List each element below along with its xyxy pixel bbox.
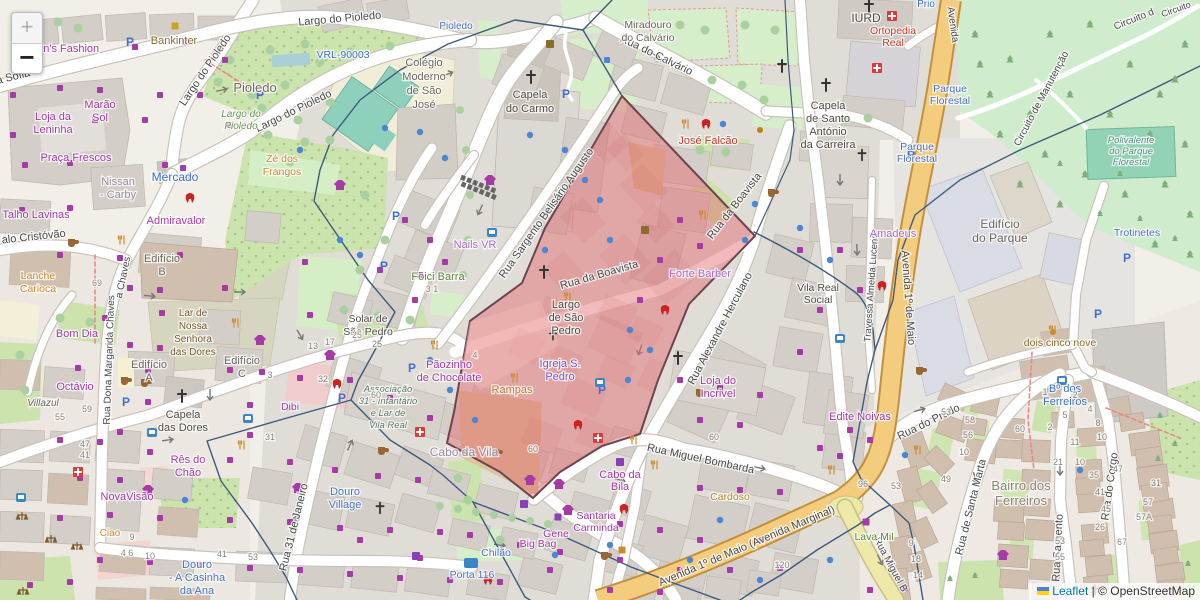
svg-text:35: 35 <box>1089 470 1099 480</box>
svg-text:5: 5 <box>1062 410 1067 420</box>
svg-text:Florestal: Florestal <box>897 153 937 165</box>
svg-text:de Santo: de Santo <box>806 113 850 125</box>
svg-text:Big Bag: Big Bag <box>520 538 557 550</box>
svg-text:25: 25 <box>352 330 362 340</box>
svg-text:Villazul: Villazul <box>27 398 59 409</box>
svg-text:11: 11 <box>1070 437 1079 447</box>
svg-text:Carioca: Carioca <box>20 283 56 295</box>
svg-text:das Dores: das Dores <box>158 422 209 434</box>
svg-text:Forte Barber: Forte Barber <box>669 268 731 280</box>
svg-text:49: 49 <box>941 474 951 484</box>
svg-text:da Carreira: da Carreira <box>800 139 856 151</box>
svg-text:31: 31 <box>1151 478 1161 488</box>
svg-text:Moderno: Moderno <box>402 71 445 83</box>
svg-text:53: 53 <box>248 552 258 562</box>
svg-text:47: 47 <box>80 439 90 449</box>
svg-text:59: 59 <box>82 404 92 414</box>
svg-text:2: 2 <box>1072 390 1077 400</box>
svg-text:Cabo da Vila: Cabo da Vila <box>430 445 499 459</box>
svg-text:Ortopedia: Ortopedia <box>870 25 916 37</box>
svg-text:Pedro: Pedro <box>545 371 574 383</box>
svg-text:Frangos: Frangos <box>263 166 302 178</box>
svg-text:32: 32 <box>318 374 328 384</box>
svg-text:Social: Social <box>804 294 833 306</box>
svg-text:Chão: Chão <box>175 467 201 479</box>
svg-text:Parque: Parque <box>933 83 967 95</box>
svg-text:Santaria: Santaria <box>576 510 615 522</box>
svg-text:P: P <box>122 395 130 409</box>
svg-text:do Parque: do Parque <box>972 231 1028 245</box>
svg-text:dois cinco nove: dois cinco nove <box>1024 337 1097 349</box>
svg-text:9: 9 <box>129 532 134 542</box>
svg-text:NovaVisão: NovaVisão <box>101 491 154 503</box>
svg-text:Prio: Prio <box>917 0 935 10</box>
svg-text:8: 8 <box>1095 418 1100 428</box>
svg-text:Loja do: Loja do <box>700 375 736 387</box>
svg-text:Leninha: Leninha <box>33 124 73 136</box>
svg-text:57A: 57A <box>1136 512 1152 522</box>
svg-text:69: 69 <box>92 278 102 288</box>
svg-text:Bairro dos: Bairro dos <box>991 478 1051 493</box>
svg-text:Ferreiros: Ferreiros <box>995 493 1048 508</box>
svg-text:Miradouro: Miradouro <box>624 19 671 31</box>
svg-text:Florestal: Florestal <box>930 95 970 107</box>
svg-text:B: B <box>158 266 165 278</box>
svg-text:Chilão: Chilão <box>481 547 511 559</box>
svg-text:Parque: Parque <box>900 141 934 153</box>
svg-text:Pioledo: Pioledo <box>224 121 258 132</box>
svg-text:P: P <box>562 87 570 101</box>
svg-text:Igreja S.: Igreja S. <box>540 358 581 370</box>
svg-text:10: 10 <box>1097 432 1107 442</box>
svg-text:Bankinter: Bankinter <box>151 35 198 47</box>
svg-text:67: 67 <box>1117 537 1127 547</box>
svg-text:4: 4 <box>472 350 477 360</box>
svg-text:do Calvário: do Calvário <box>621 32 674 44</box>
svg-text:Largo do: Largo do <box>221 109 261 120</box>
svg-text:96: 96 <box>858 479 868 489</box>
svg-text:Ciao: Ciao <box>100 528 121 539</box>
svg-text:Village: Village <box>329 499 362 511</box>
svg-text:VRL-90003: VRL-90003 <box>316 49 369 61</box>
svg-text:Capela: Capela <box>166 409 202 421</box>
svg-text:de Chocolate: de Chocolate <box>417 372 482 384</box>
svg-text:Pioledo: Pioledo <box>233 80 276 95</box>
svg-text:Edifício: Edifício <box>144 253 180 265</box>
svg-text:de São: de São <box>407 85 442 97</box>
svg-text:Nails VR: Nails VR <box>454 239 497 251</box>
svg-text:Pãozinho: Pãozinho <box>426 359 472 371</box>
svg-text:56: 56 <box>963 430 973 440</box>
svg-text:Bom Dia: Bom Dia <box>56 328 99 340</box>
svg-text:Praça Frescos: Praça Frescos <box>41 152 112 164</box>
svg-text:18: 18 <box>911 554 921 564</box>
svg-text:41: 41 <box>217 549 227 559</box>
svg-text:P: P <box>392 209 400 223</box>
svg-text:Edite Noivas: Edite Noivas <box>829 411 891 423</box>
svg-text:Largo: Largo <box>552 299 580 311</box>
svg-text:Loja da: Loja da <box>35 111 72 123</box>
svg-text:de São: de São <box>549 312 584 324</box>
svg-text:P: P <box>126 35 134 49</box>
svg-text:Mercado: Mercado <box>152 170 199 184</box>
svg-text:3: 3 <box>267 370 272 380</box>
svg-text:Marão: Marão <box>84 99 115 111</box>
svg-text:Rês do: Rês do <box>171 454 206 466</box>
svg-text:- Carby: - Carby <box>100 189 137 201</box>
svg-text:Nissan: Nissan <box>101 176 135 188</box>
svg-text:Bila: Bila <box>611 481 630 493</box>
svg-text:Lava Mil: Lava Mil <box>854 531 893 543</box>
svg-text:31: 31 <box>265 432 275 442</box>
svg-text:60: 60 <box>1015 424 1025 434</box>
svg-text:IURD: IURD <box>851 11 881 25</box>
svg-text:P: P <box>338 391 346 405</box>
svg-text:Edifício: Edifício <box>980 217 1020 231</box>
svg-text:Talho Lavinas: Talho Lavinas <box>2 209 70 221</box>
svg-text:Douro: Douro <box>330 486 360 498</box>
svg-text:Edifício: Edifício <box>224 355 260 367</box>
svg-text:Dibi: Dibi <box>281 401 299 413</box>
svg-text:José Falcão: José Falcão <box>678 135 737 147</box>
svg-text:10: 10 <box>959 447 969 457</box>
svg-text:4: 4 <box>1087 404 1092 414</box>
svg-text:25: 25 <box>372 339 382 349</box>
svg-text:Cardoso: Cardoso <box>710 491 750 503</box>
svg-text:do Parque: do Parque <box>1109 146 1153 157</box>
svg-text:P: P <box>1094 307 1102 321</box>
svg-text:C: C <box>238 368 246 380</box>
svg-text:60: 60 <box>528 444 538 454</box>
svg-text:Zé dos: Zé dos <box>266 153 298 165</box>
svg-text:Incrivel: Incrivel <box>701 388 736 400</box>
svg-text:57: 57 <box>1143 497 1153 507</box>
svg-text:13: 13 <box>308 341 318 351</box>
svg-text:45: 45 <box>1101 504 1111 514</box>
svg-text:Porta 116: Porta 116 <box>450 569 495 581</box>
svg-text:P: P <box>380 259 388 273</box>
svg-text:9: 9 <box>908 538 913 548</box>
svg-text:2: 2 <box>1047 422 1052 432</box>
svg-text:António: António <box>809 126 846 138</box>
svg-text:10: 10 <box>145 551 155 561</box>
svg-text:47: 47 <box>1113 464 1123 474</box>
svg-text:e Lar de: e Lar de <box>371 408 406 419</box>
svg-text:Amadeus: Amadeus <box>870 228 917 240</box>
svg-text:São Pedro: São Pedro <box>343 326 393 338</box>
svg-text:Rampas: Rampas <box>492 384 533 396</box>
svg-text:Admiravalor: Admiravalor <box>147 215 206 227</box>
svg-text:José: José <box>412 99 435 111</box>
svg-text:58: 58 <box>965 415 975 425</box>
svg-text:31 - Infantário: 31 - Infantário <box>359 396 418 407</box>
svg-text:1: 1 <box>1042 387 1047 397</box>
svg-text:55: 55 <box>55 412 65 422</box>
svg-text:Vila Real: Vila Real <box>369 420 408 431</box>
svg-text:41: 41 <box>1095 487 1105 497</box>
svg-text:Capela: Capela <box>513 89 549 101</box>
svg-text:26: 26 <box>1095 522 1105 532</box>
svg-text:in's Fashion: in's Fashion <box>41 43 99 55</box>
svg-text:Trotinetes: Trotinetes <box>1114 227 1160 239</box>
svg-text:Senhora: Senhora <box>174 334 212 345</box>
svg-text:Capela: Capela <box>811 100 847 112</box>
svg-text:Colégio: Colégio <box>405 57 442 69</box>
svg-text:Nossa: Nossa <box>179 321 208 332</box>
svg-text:41: 41 <box>80 450 90 460</box>
svg-text:Foici Barra: Foici Barra <box>411 271 465 283</box>
svg-text:Pedro: Pedro <box>551 325 580 337</box>
svg-text:Lar de: Lar de <box>179 308 208 319</box>
svg-text:60: 60 <box>709 432 719 442</box>
svg-text:Douro: Douro <box>182 559 212 571</box>
svg-text:120: 120 <box>774 560 789 570</box>
svg-text:17: 17 <box>325 337 335 347</box>
svg-text:21: 21 <box>1053 457 1063 467</box>
svg-text:Vila Real: Vila Real <box>797 282 839 294</box>
svg-text:A: A <box>145 372 153 384</box>
svg-text:Carminda: Carminda <box>573 522 619 534</box>
svg-text:Florestal: Florestal <box>1113 157 1150 168</box>
svg-text:das Dores: das Dores <box>170 347 216 358</box>
svg-text:do Carmo: do Carmo <box>506 103 554 115</box>
svg-text:4 6: 4 6 <box>121 548 134 558</box>
svg-text:Ferreiros: Ferreiros <box>1043 396 1088 408</box>
svg-text:53: 53 <box>1055 536 1065 546</box>
svg-text:53: 53 <box>941 407 951 417</box>
svg-text:55: 55 <box>1055 552 1065 562</box>
svg-text:Octávio: Octávio <box>56 381 93 393</box>
svg-text:da Ana: da Ana <box>180 585 215 597</box>
svg-text:Sol: Sol <box>92 112 108 124</box>
svg-text:Real: Real <box>882 37 904 49</box>
svg-text:60: 60 <box>371 390 381 400</box>
svg-text:3 1: 3 1 <box>426 284 439 294</box>
svg-text:P: P <box>1123 251 1131 265</box>
svg-text:14: 14 <box>913 570 923 580</box>
svg-text:- A Casinha: - A Casinha <box>169 572 226 584</box>
svg-text:Pioledo: Pioledo <box>439 21 473 32</box>
svg-text:Cabo da: Cabo da <box>599 469 641 481</box>
svg-text:P: P <box>408 361 416 375</box>
svg-text:10: 10 <box>1075 457 1085 467</box>
svg-text:Polivalente: Polivalente <box>1108 135 1154 146</box>
svg-text:Solar de: Solar de <box>348 313 387 325</box>
svg-text:Lanche: Lanche <box>21 270 56 282</box>
svg-text:Edifício: Edifício <box>131 359 167 371</box>
svg-text:53: 53 <box>891 481 901 491</box>
